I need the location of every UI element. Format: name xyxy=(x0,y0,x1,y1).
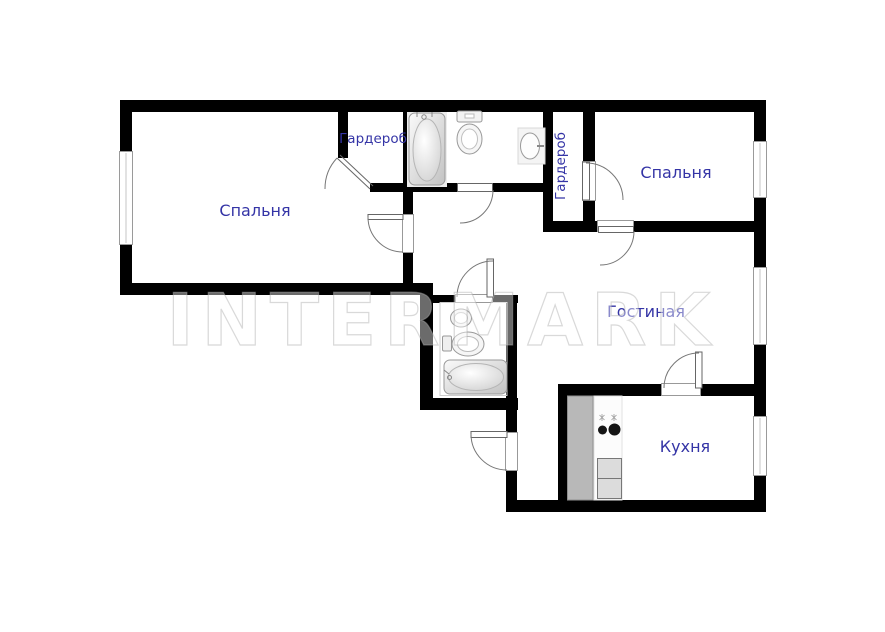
bathtub-icon xyxy=(444,360,507,394)
room-label-bedroom2: Спальня xyxy=(621,163,731,182)
doorframe-balcony xyxy=(506,433,518,471)
door-arc-kitchen xyxy=(664,353,699,388)
toilet-icon xyxy=(457,111,482,154)
doorframe-kitchen xyxy=(662,384,701,396)
room-label-bedroom1: Спальня xyxy=(200,201,310,220)
door-leaf-kitchen xyxy=(696,352,703,388)
door-leaf-bedroom1 xyxy=(368,215,403,220)
room-label-wardrobe1: Гардероб xyxy=(338,131,408,147)
sink-icon xyxy=(518,128,545,164)
toilet-icon xyxy=(443,332,485,356)
room-label-kitchen: Кухня xyxy=(635,437,735,456)
cabinet-icon xyxy=(568,396,594,500)
door-leaf-bedroom2 xyxy=(583,162,590,200)
sink-icon xyxy=(451,309,472,327)
door-leaf-bathroom1 xyxy=(458,184,493,192)
fridge-icon xyxy=(598,459,622,499)
floorplan-symbols xyxy=(0,0,885,632)
bathtub-icon xyxy=(407,112,447,187)
door-arc-balcony xyxy=(471,434,507,470)
door-leaf-bathroom2 xyxy=(487,259,494,297)
door-leaf-balcony xyxy=(471,432,507,438)
door-leaf-living xyxy=(599,227,634,233)
door-arc-bedroom1 xyxy=(368,217,403,252)
floorplan-canvas: Спальня Гардероб Гардероб Спальня Гостин… xyxy=(0,0,885,632)
room-label-wardrobe2: Гардероб xyxy=(553,116,569,216)
door-arc-wardrobe1 xyxy=(325,158,337,189)
door-arc-living xyxy=(600,231,634,265)
door-arc-bathroom1 xyxy=(460,190,493,223)
door-leaf-wardrobe1 xyxy=(337,158,370,189)
door-leaf-wardrobe1 xyxy=(340,155,373,186)
room-label-living: Гостиная xyxy=(591,302,701,321)
doorframe-bedroom1 xyxy=(403,215,414,253)
